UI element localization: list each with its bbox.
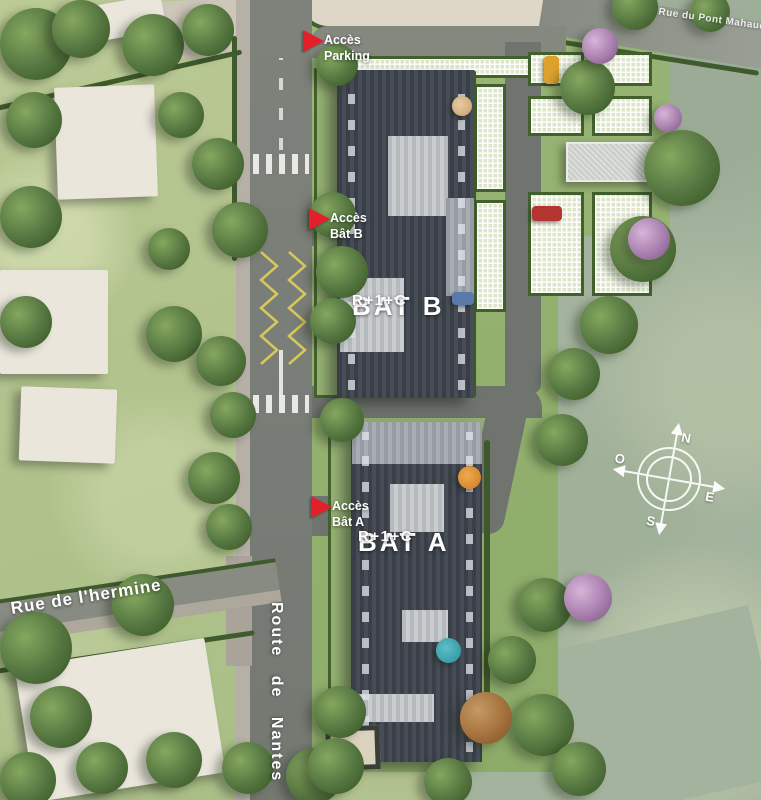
access-arrow-icon — [303, 30, 324, 52]
access-bat-a-line1: Accès — [332, 499, 369, 515]
tree — [580, 296, 638, 354]
access-arrow-icon — [311, 496, 332, 518]
tree — [644, 130, 720, 206]
crosswalk — [253, 154, 309, 174]
tree — [548, 348, 600, 400]
tree — [0, 612, 72, 684]
parasol-tan — [452, 96, 472, 116]
bat-a-levels: R+1+C — [358, 528, 413, 547]
bat-b-levels: R+1+C — [352, 292, 407, 311]
crosswalk — [253, 395, 309, 413]
tree — [320, 398, 364, 442]
purple-tree — [582, 28, 618, 64]
bat-a-terrace — [390, 484, 444, 532]
tree — [552, 742, 606, 796]
access-arrow-icon — [309, 208, 330, 230]
tree — [0, 186, 62, 248]
tree — [192, 138, 244, 190]
access-bat-b-line1: Accès — [330, 211, 367, 227]
access-bat-a-line2: Bât A — [332, 515, 364, 531]
tree — [310, 298, 356, 344]
house — [54, 84, 158, 199]
tree — [210, 392, 256, 438]
compass-graphic — [601, 411, 738, 548]
parasol-orange — [458, 466, 481, 489]
tree — [0, 296, 52, 348]
purple-tree — [654, 104, 682, 132]
tree — [122, 14, 184, 76]
parking-pavers — [474, 200, 506, 312]
tree — [76, 742, 128, 794]
tree — [52, 0, 110, 58]
purple-tree — [628, 218, 670, 260]
tree — [314, 686, 366, 738]
center-line — [279, 58, 283, 150]
car-red — [532, 206, 562, 221]
tree — [488, 636, 536, 684]
tree — [158, 92, 204, 138]
tree — [0, 752, 56, 800]
tree — [146, 306, 202, 362]
tree — [536, 414, 588, 466]
access-bat-a-marker: Accès Bât A — [228, 496, 332, 518]
tree — [146, 732, 202, 788]
compass-rose: N O E S — [601, 411, 738, 548]
roof-windows — [458, 80, 465, 390]
car-blue — [452, 292, 474, 305]
tree — [560, 60, 615, 115]
access-bat-b-line2: Bât B — [330, 227, 363, 243]
purple-tree — [564, 574, 612, 622]
access-parking-line2: Parking — [324, 49, 370, 65]
tree — [424, 758, 472, 800]
parking-pavers — [474, 84, 506, 192]
parasol-teal — [436, 638, 461, 663]
tree — [182, 4, 234, 56]
zigzag-marking — [257, 250, 309, 372]
tree — [148, 228, 190, 270]
car-yellow — [544, 56, 559, 84]
hedge — [484, 440, 490, 730]
access-parking-line1: Accès — [324, 33, 361, 49]
bat-a-roof-section — [352, 422, 482, 464]
access-parking-marker: Accès Parking — [228, 30, 324, 52]
tree — [518, 578, 572, 632]
site-plan: Accès Parking Accès Bât B Accès Bât A BA… — [0, 0, 761, 800]
tree — [30, 686, 92, 748]
tree — [196, 336, 246, 386]
bat-a-terrace — [402, 610, 448, 642]
sidewalk — [236, 0, 250, 580]
tree — [308, 738, 364, 794]
route-de-nantes-label: Route de Nantes — [266, 602, 286, 792]
tree — [6, 92, 62, 148]
access-bat-b-marker: Accès Bât B — [228, 208, 330, 230]
bat-b-terrace — [388, 136, 448, 216]
house — [19, 386, 118, 463]
autumn-shrub — [460, 692, 512, 744]
